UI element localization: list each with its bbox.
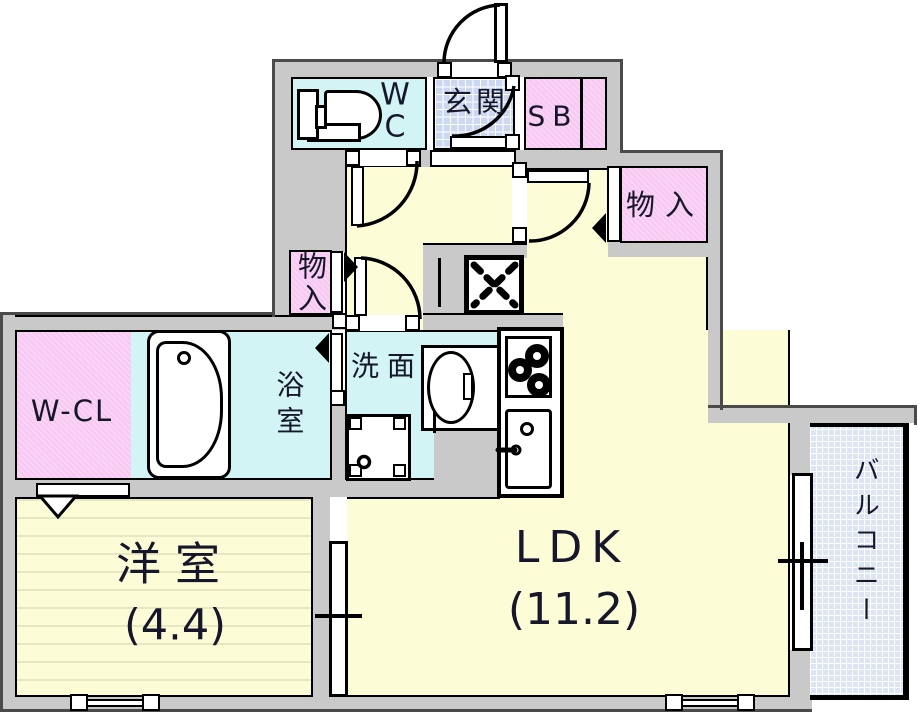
door-hinge: [330, 390, 345, 406]
washer-corner: [349, 417, 362, 430]
vanity-floor: [434, 431, 500, 480]
sliding-door: [329, 541, 348, 697]
wcl-door-leaf: [36, 483, 130, 497]
door-hinge: [332, 313, 347, 329]
shoe-box-divider-line: [580, 77, 583, 150]
door-hinge: [345, 150, 360, 166]
wall-segment: [708, 407, 917, 423]
western-room-floor: [15, 497, 313, 697]
outer-edge: [914, 405, 917, 425]
wall-segment: [423, 258, 467, 313]
ldk-floor-left: [347, 497, 500, 697]
balcony-border-top: [810, 423, 908, 427]
outer-edge: [708, 405, 917, 408]
balcony-window-tick: [778, 559, 828, 563]
wall-segment: [790, 650, 812, 697]
window-cap: [737, 694, 755, 711]
sliding-door-tick: [315, 614, 362, 618]
window-cap: [70, 694, 88, 711]
door-hinge: [512, 227, 527, 243]
window-bar: [681, 699, 739, 707]
storage-right-label: 物入: [626, 190, 704, 220]
doorway: [360, 315, 405, 331]
washer-corner: [393, 417, 406, 430]
wc-label-line2: C: [380, 111, 410, 143]
wall-segment: [275, 62, 291, 150]
washbasin-faucet-icon: [463, 373, 473, 400]
wc-label-line1: W: [380, 80, 410, 112]
window-cap: [665, 694, 683, 711]
wall-segment: [313, 480, 330, 697]
balcony-window-mid: [800, 542, 804, 610]
window-bar: [86, 699, 144, 707]
storage-right-door-leaf: [607, 166, 621, 242]
outer-edge: [0, 312, 275, 315]
balcony-border-right: [903, 423, 909, 700]
ldk-label: LDK: [515, 525, 629, 571]
sink-icon: [505, 409, 552, 489]
pipe-shaft-icon: [464, 255, 524, 315]
storage-left-door-leaf: [330, 251, 343, 313]
doorway: [360, 150, 406, 166]
outer-edge: [0, 312, 3, 712]
balcony-border-bottom: [810, 695, 908, 700]
outer-edge: [272, 59, 275, 317]
outer-edge: [720, 150, 723, 410]
wall-segment: [275, 62, 442, 77]
balcony-label: バルコニー: [850, 456, 877, 631]
wc-door-leaf: [351, 166, 364, 226]
door-hinge: [512, 162, 527, 178]
entrance-door-leaf: [494, 3, 508, 63]
outer-edge: [620, 150, 723, 153]
washroom-door-leaf: [354, 257, 367, 316]
door-hinge: [505, 134, 520, 150]
toilet-knob-icon: [315, 105, 327, 129]
ldk-area: (11.2): [508, 587, 640, 633]
floor-plan: W C 玄関 SB 物入 物入 洗面 浴室 W-CL 洋室 (4.4) LDK …: [0, 0, 922, 712]
wc-label: W C: [380, 80, 410, 143]
washer-corner: [349, 464, 362, 477]
wall-segment: [503, 62, 623, 77]
door-hinge: [406, 150, 421, 166]
wall-segment: [790, 423, 812, 475]
stove-icon: [505, 336, 552, 398]
window-cap: [142, 694, 160, 711]
wall-segment: [3, 315, 360, 330]
washroom-label: 洗面: [351, 351, 423, 380]
outer-edge: [620, 59, 623, 153]
walk-in-closet-label: W-CL: [31, 396, 113, 426]
western-room-area: (4.4): [124, 603, 226, 648]
ldk-door-leaf: [527, 170, 589, 183]
bathroom-label: 浴室: [274, 370, 303, 442]
washer-corner: [393, 464, 406, 477]
wall-segment: [273, 150, 345, 252]
storage-left-label: 物入: [295, 251, 325, 315]
door-hinge: [405, 315, 420, 331]
entrance-step: [430, 150, 516, 167]
wall-segment: [608, 242, 708, 257]
entrance-door-arc: [444, 5, 500, 62]
door-hinge: [345, 315, 360, 331]
doorway: [512, 178, 527, 228]
shoe-box-label: SB: [528, 101, 579, 130]
entrance-label: 玄関: [443, 87, 509, 117]
western-room-label: 洋室: [116, 540, 234, 587]
door-hinge: [437, 62, 452, 78]
duct-line: [438, 258, 441, 307]
